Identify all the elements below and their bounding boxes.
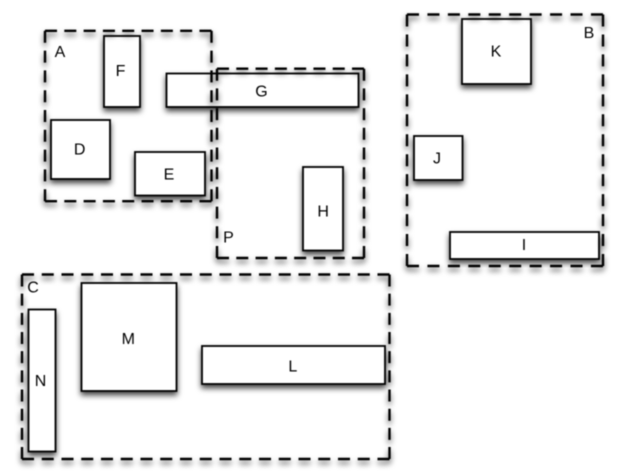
svg-text:L: L (288, 358, 297, 375)
svg-text:J: J (433, 151, 441, 168)
svg-text:C: C (27, 280, 39, 297)
svg-text:G: G (255, 84, 267, 101)
svg-text:M: M (122, 331, 135, 348)
svg-text:B: B (584, 25, 595, 42)
svg-text:N: N (35, 373, 47, 390)
svg-text:E: E (164, 167, 175, 184)
svg-text:P: P (223, 230, 234, 247)
svg-text:F: F (116, 63, 126, 80)
svg-text:H: H (317, 203, 329, 220)
svg-text:D: D (74, 142, 86, 159)
svg-text:K: K (491, 44, 502, 61)
svg-text:I: I (522, 237, 526, 254)
svg-text:A: A (55, 44, 66, 61)
